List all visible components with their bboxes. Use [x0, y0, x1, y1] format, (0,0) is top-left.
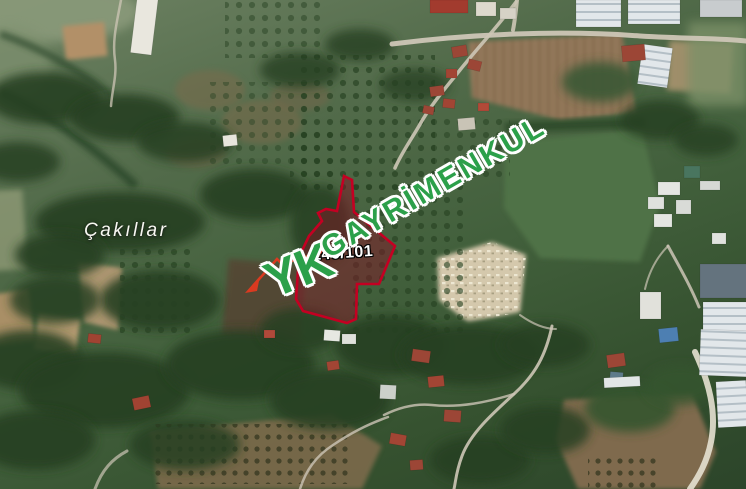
building	[700, 181, 720, 190]
greenhouse-building	[604, 376, 640, 388]
red-roof-house	[478, 103, 489, 111]
tree-cluster	[270, 370, 390, 430]
tree-cluster	[10, 276, 100, 324]
satellite-map-image: Çakıllar 146/101 YK GAYRİMENKUL	[0, 0, 746, 489]
greenhouse-building	[699, 329, 746, 377]
red-roof-house	[88, 333, 102, 343]
red-roof-house	[327, 360, 340, 371]
teal-roof-building	[684, 166, 700, 178]
tree-cluster	[325, 29, 395, 61]
building	[676, 200, 691, 214]
green-field	[504, 130, 660, 262]
dirt-patch	[62, 22, 107, 60]
red-roof-house	[444, 409, 462, 422]
white-building	[342, 334, 356, 344]
greenhouse-building	[716, 380, 746, 428]
warehouse	[700, 264, 746, 298]
red-roof-house	[621, 44, 645, 62]
gray-roof-house	[380, 385, 397, 400]
tree-cluster	[137, 122, 233, 162]
industrial-shed	[576, 0, 621, 27]
red-roof-house	[443, 98, 456, 108]
orchard-rows	[225, 0, 325, 58]
field-patch	[688, 22, 746, 106]
access-road	[645, 246, 668, 289]
access-road	[668, 246, 699, 307]
white-building	[324, 329, 341, 341]
building	[648, 197, 664, 209]
terrain-svg	[0, 0, 746, 489]
industrial-shed	[700, 0, 742, 17]
red-roof-house	[410, 460, 424, 471]
tree-cluster	[100, 270, 220, 330]
red-roof-house	[389, 433, 407, 447]
tree-cluster	[0, 142, 60, 182]
tree-cluster	[260, 52, 340, 88]
tree-cluster	[130, 420, 240, 470]
tree-cluster	[15, 233, 105, 277]
orchard-rows	[588, 452, 660, 488]
tree-cluster	[562, 62, 638, 102]
tree-cluster	[500, 323, 590, 367]
building	[476, 2, 496, 16]
building	[654, 214, 672, 227]
red-roof-house	[446, 69, 457, 78]
building	[640, 292, 661, 319]
red-roof-house	[411, 349, 430, 363]
blue-tarp	[658, 327, 678, 343]
red-roof-house	[606, 353, 626, 368]
tree-cluster	[674, 124, 738, 156]
building	[712, 233, 726, 244]
industrial-shed	[628, 0, 680, 24]
red-roof-house	[451, 45, 468, 58]
red-roof-house	[428, 375, 445, 388]
building	[658, 182, 680, 195]
trail	[95, 451, 127, 489]
building	[500, 8, 516, 19]
tree-cluster	[500, 406, 590, 454]
white-building	[223, 134, 238, 146]
gray-roof-house	[458, 117, 476, 130]
red-roof-building	[430, 0, 468, 13]
red-roof-house	[429, 85, 444, 97]
red-roof-house	[264, 330, 275, 338]
